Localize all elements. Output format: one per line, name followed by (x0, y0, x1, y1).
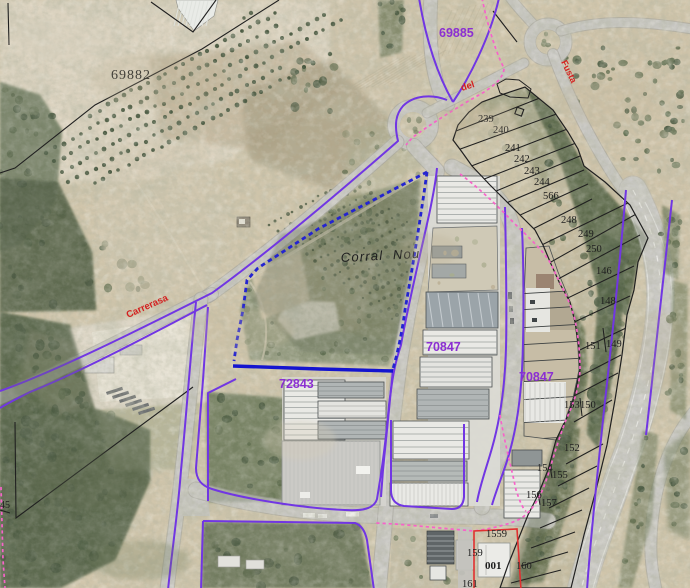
svg-text:151: 151 (585, 341, 601, 352)
svg-text:244: 244 (534, 177, 551, 188)
svg-text:159: 159 (467, 548, 483, 559)
svg-text:152: 152 (564, 443, 580, 454)
svg-text:249: 249 (578, 229, 594, 240)
svg-text:161: 161 (462, 579, 478, 588)
svg-text:146: 146 (596, 266, 612, 277)
svg-text:001: 001 (485, 560, 502, 572)
svg-text:566: 566 (543, 191, 559, 202)
svg-text:243: 243 (524, 166, 540, 177)
svg-text:69885: 69885 (439, 26, 474, 40)
svg-text:242: 242 (514, 154, 530, 165)
svg-text:150: 150 (580, 400, 596, 411)
svg-text:153: 153 (564, 400, 580, 411)
svg-text:45: 45 (0, 500, 10, 511)
svg-text:250: 250 (586, 244, 602, 255)
svg-text:70847: 70847 (426, 340, 461, 354)
svg-text:156: 156 (526, 490, 542, 501)
svg-text:70847: 70847 (519, 370, 554, 384)
svg-text:1559: 1559 (486, 529, 507, 540)
svg-text:72843: 72843 (279, 377, 314, 391)
svg-text:149: 149 (606, 339, 622, 350)
svg-text:241: 241 (505, 143, 521, 154)
svg-text:157: 157 (541, 498, 557, 509)
svg-text:160: 160 (516, 561, 532, 572)
svg-text:155: 155 (552, 470, 568, 481)
svg-text:248: 248 (561, 215, 577, 226)
svg-text:148: 148 (600, 296, 616, 307)
